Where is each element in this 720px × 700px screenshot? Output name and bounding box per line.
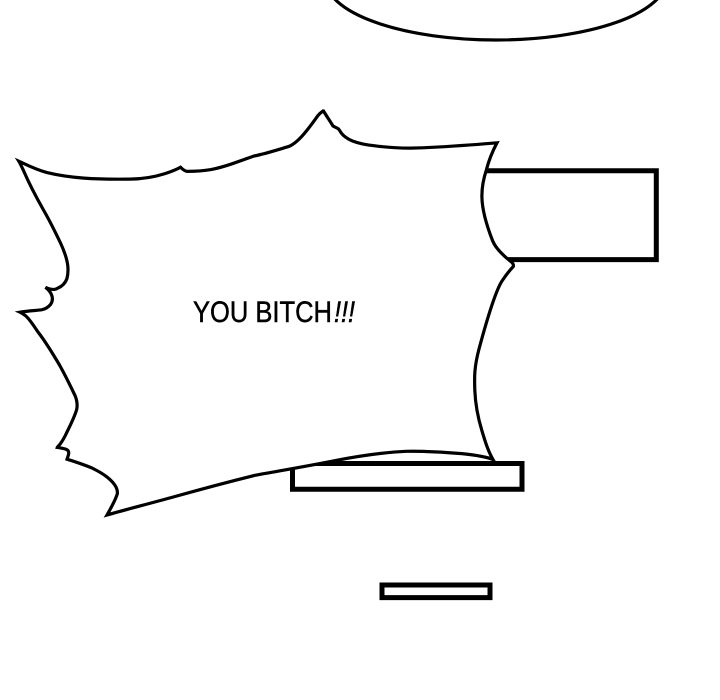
svg-text:YOU BITCH: YOU BITCH <box>193 296 332 329</box>
svg-text:!!!: !!! <box>334 296 356 329</box>
